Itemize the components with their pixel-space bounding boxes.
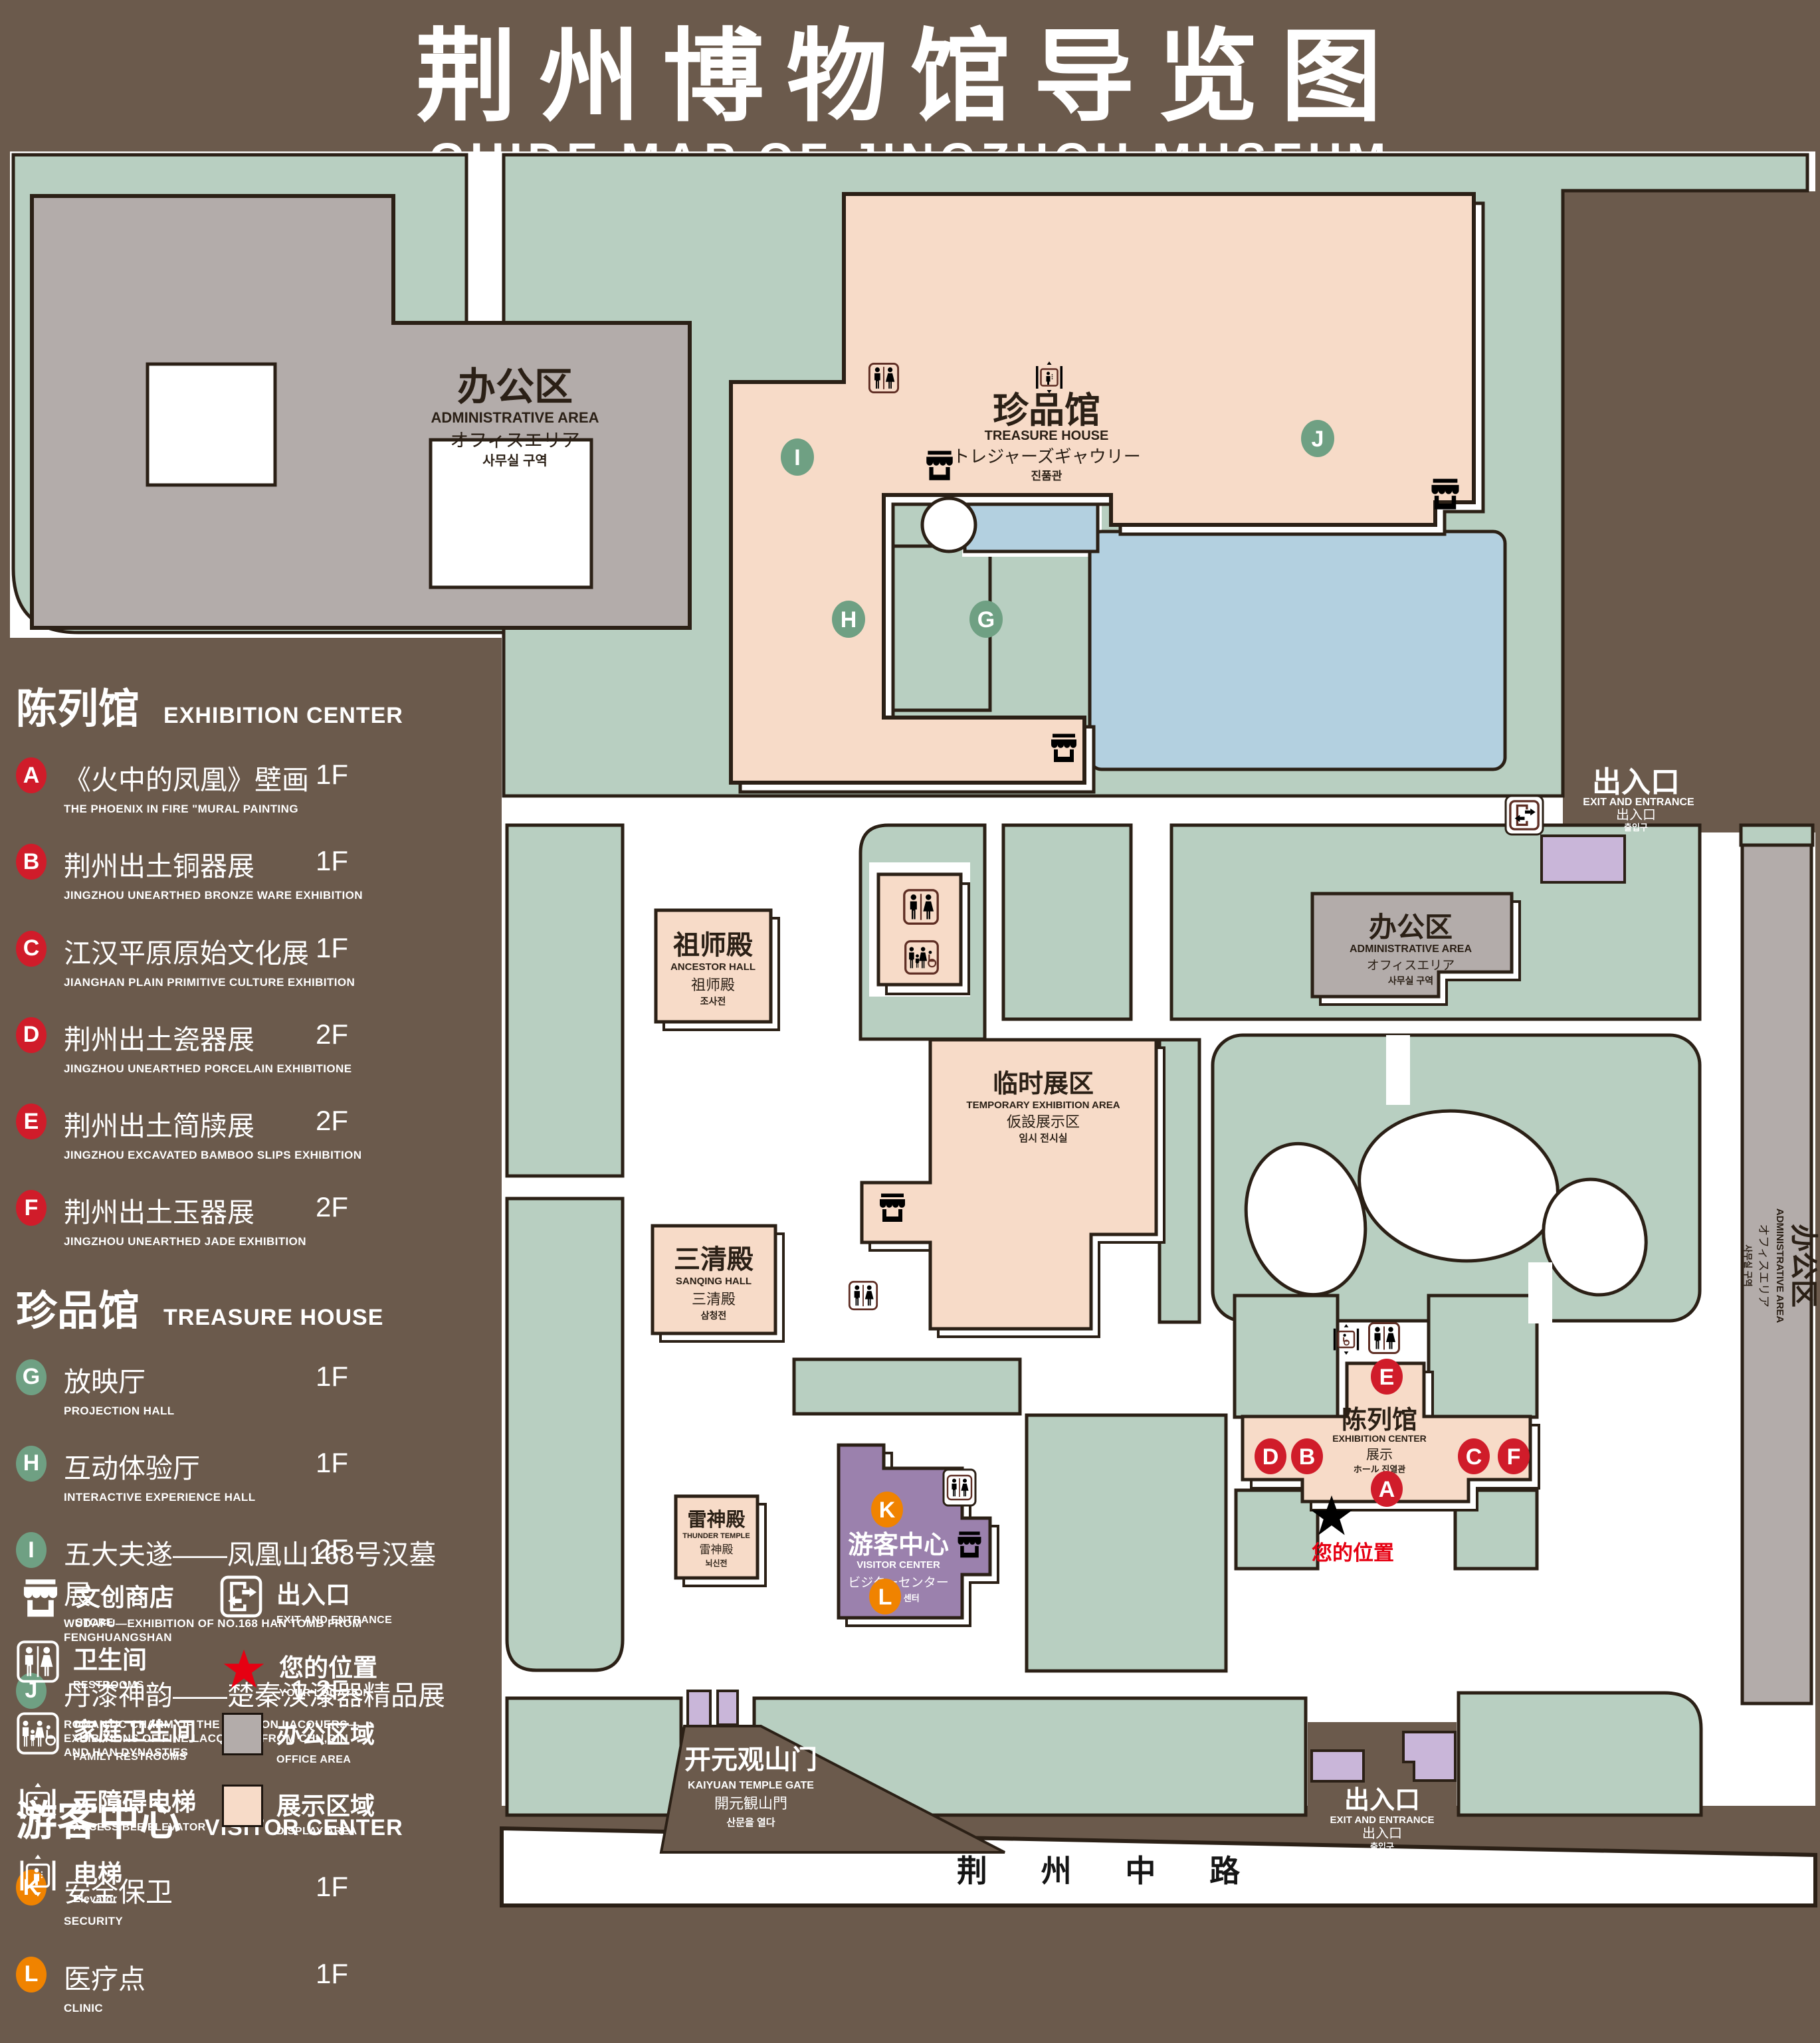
- exit-icon: [219, 1573, 263, 1620]
- display-area-swatch: [222, 1785, 263, 1827]
- sym-en: OFFICE AREA: [276, 1754, 375, 1766]
- your-location-star: [222, 1646, 266, 1693]
- guide-map-poster: { "title": { "zh": "荆州博物馆导览图", "en": "GU…: [0, 0, 1820, 1945]
- sym-zh: 文创商店: [76, 1577, 174, 1613]
- sym-zh: 家庭卫生间: [73, 1711, 196, 1747]
- legend-store: 文创商店 STORE: [19, 1576, 174, 1629]
- sym-zh: 出入口: [276, 1575, 392, 1610]
- sym-en: Elevator: [73, 1894, 122, 1905]
- sym-en: EXIT AND ENTRANCE: [276, 1614, 392, 1626]
- legend-office-area: 办公区域 OFFICE AREA: [222, 1713, 375, 1766]
- sym-en: STORE: [76, 1617, 174, 1629]
- sym-en: ACCESSIBLE ELEVATOR: [73, 1822, 206, 1834]
- legend-item-L: L 医疗点 CLINIC 1F: [16, 1957, 455, 2015]
- legend-display-area: 展示区域 DISPLAY AREA: [222, 1785, 375, 1838]
- item-floor: 1F: [316, 1958, 348, 1990]
- store-icon: [19, 1576, 62, 1622]
- sym-en: YOUR LOCATION: [279, 1688, 377, 1700]
- sym-zh: 办公区域: [276, 1714, 375, 1750]
- legend-family-restrooms: 家庭卫生间 FAMILY RESTROOMS: [16, 1710, 196, 1763]
- sym-zh: 无障碍电梯: [73, 1782, 206, 1818]
- restrooms-icon: [16, 1638, 60, 1685]
- item-en: CLINIC: [64, 2001, 376, 2015]
- legend-accessible-elevator: 无障碍电梯 ACCESSIBLE ELEVATOR: [16, 1781, 206, 1834]
- sym-zh: 卫生间: [73, 1640, 147, 1676]
- family-restrooms-icon: [16, 1710, 60, 1757]
- accessible-elevator-icon: [16, 1781, 60, 1827]
- sym-zh: 您的位置: [279, 1648, 377, 1684]
- elevator-icon: [16, 1852, 60, 1899]
- sym-zh: 展示区域: [276, 1786, 375, 1822]
- legend-your-location: 您的位置 YOUR LOCATION: [222, 1646, 377, 1700]
- legend-restrooms: 卫生间 RESTROOMS: [16, 1638, 147, 1692]
- sym-en: FAMILY RESTROOMS: [73, 1751, 196, 1763]
- marker-badge-L: L: [16, 1957, 47, 1993]
- legend-exit: 出入口 EXIT AND ENTRANCE: [219, 1573, 392, 1626]
- office-area-swatch: [222, 1713, 263, 1755]
- legend-elevator: 电梯 Elevator: [16, 1852, 122, 1905]
- sym-en: DISPLAY AREA: [276, 1826, 375, 1838]
- sym-en: RESTROOMS: [73, 1680, 147, 1692]
- sym-zh: 电梯: [73, 1854, 122, 1890]
- item-zh: 医疗点: [64, 1957, 455, 1996]
- legend-symbols: 文创商店 STORE 卫生间 RESTROOMS 家庭卫生间 FAMILY RE…: [0, 0, 1820, 1945]
